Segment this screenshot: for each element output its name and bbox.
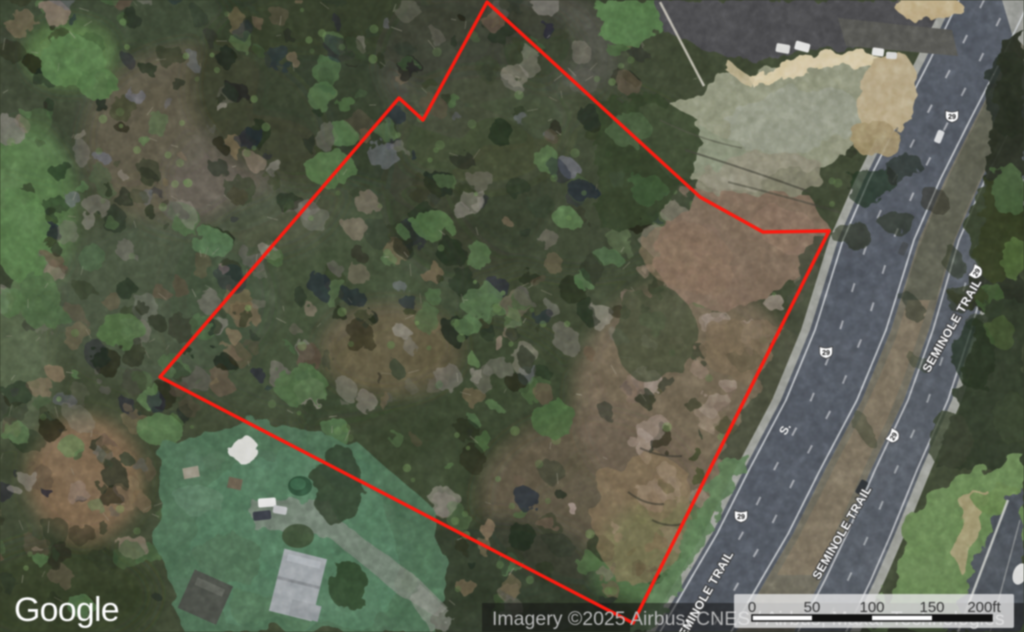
svg-text:29: 29 bbox=[822, 350, 830, 357]
svg-text:0: 0 bbox=[748, 599, 756, 616]
svg-text:29: 29 bbox=[737, 514, 745, 521]
svg-text:150: 150 bbox=[919, 599, 944, 616]
svg-text:Google: Google bbox=[14, 591, 119, 629]
svg-text:50: 50 bbox=[804, 599, 821, 616]
svg-text:100: 100 bbox=[859, 599, 884, 616]
svg-text:200ft: 200ft bbox=[967, 599, 1001, 616]
svg-text:29: 29 bbox=[948, 114, 956, 121]
